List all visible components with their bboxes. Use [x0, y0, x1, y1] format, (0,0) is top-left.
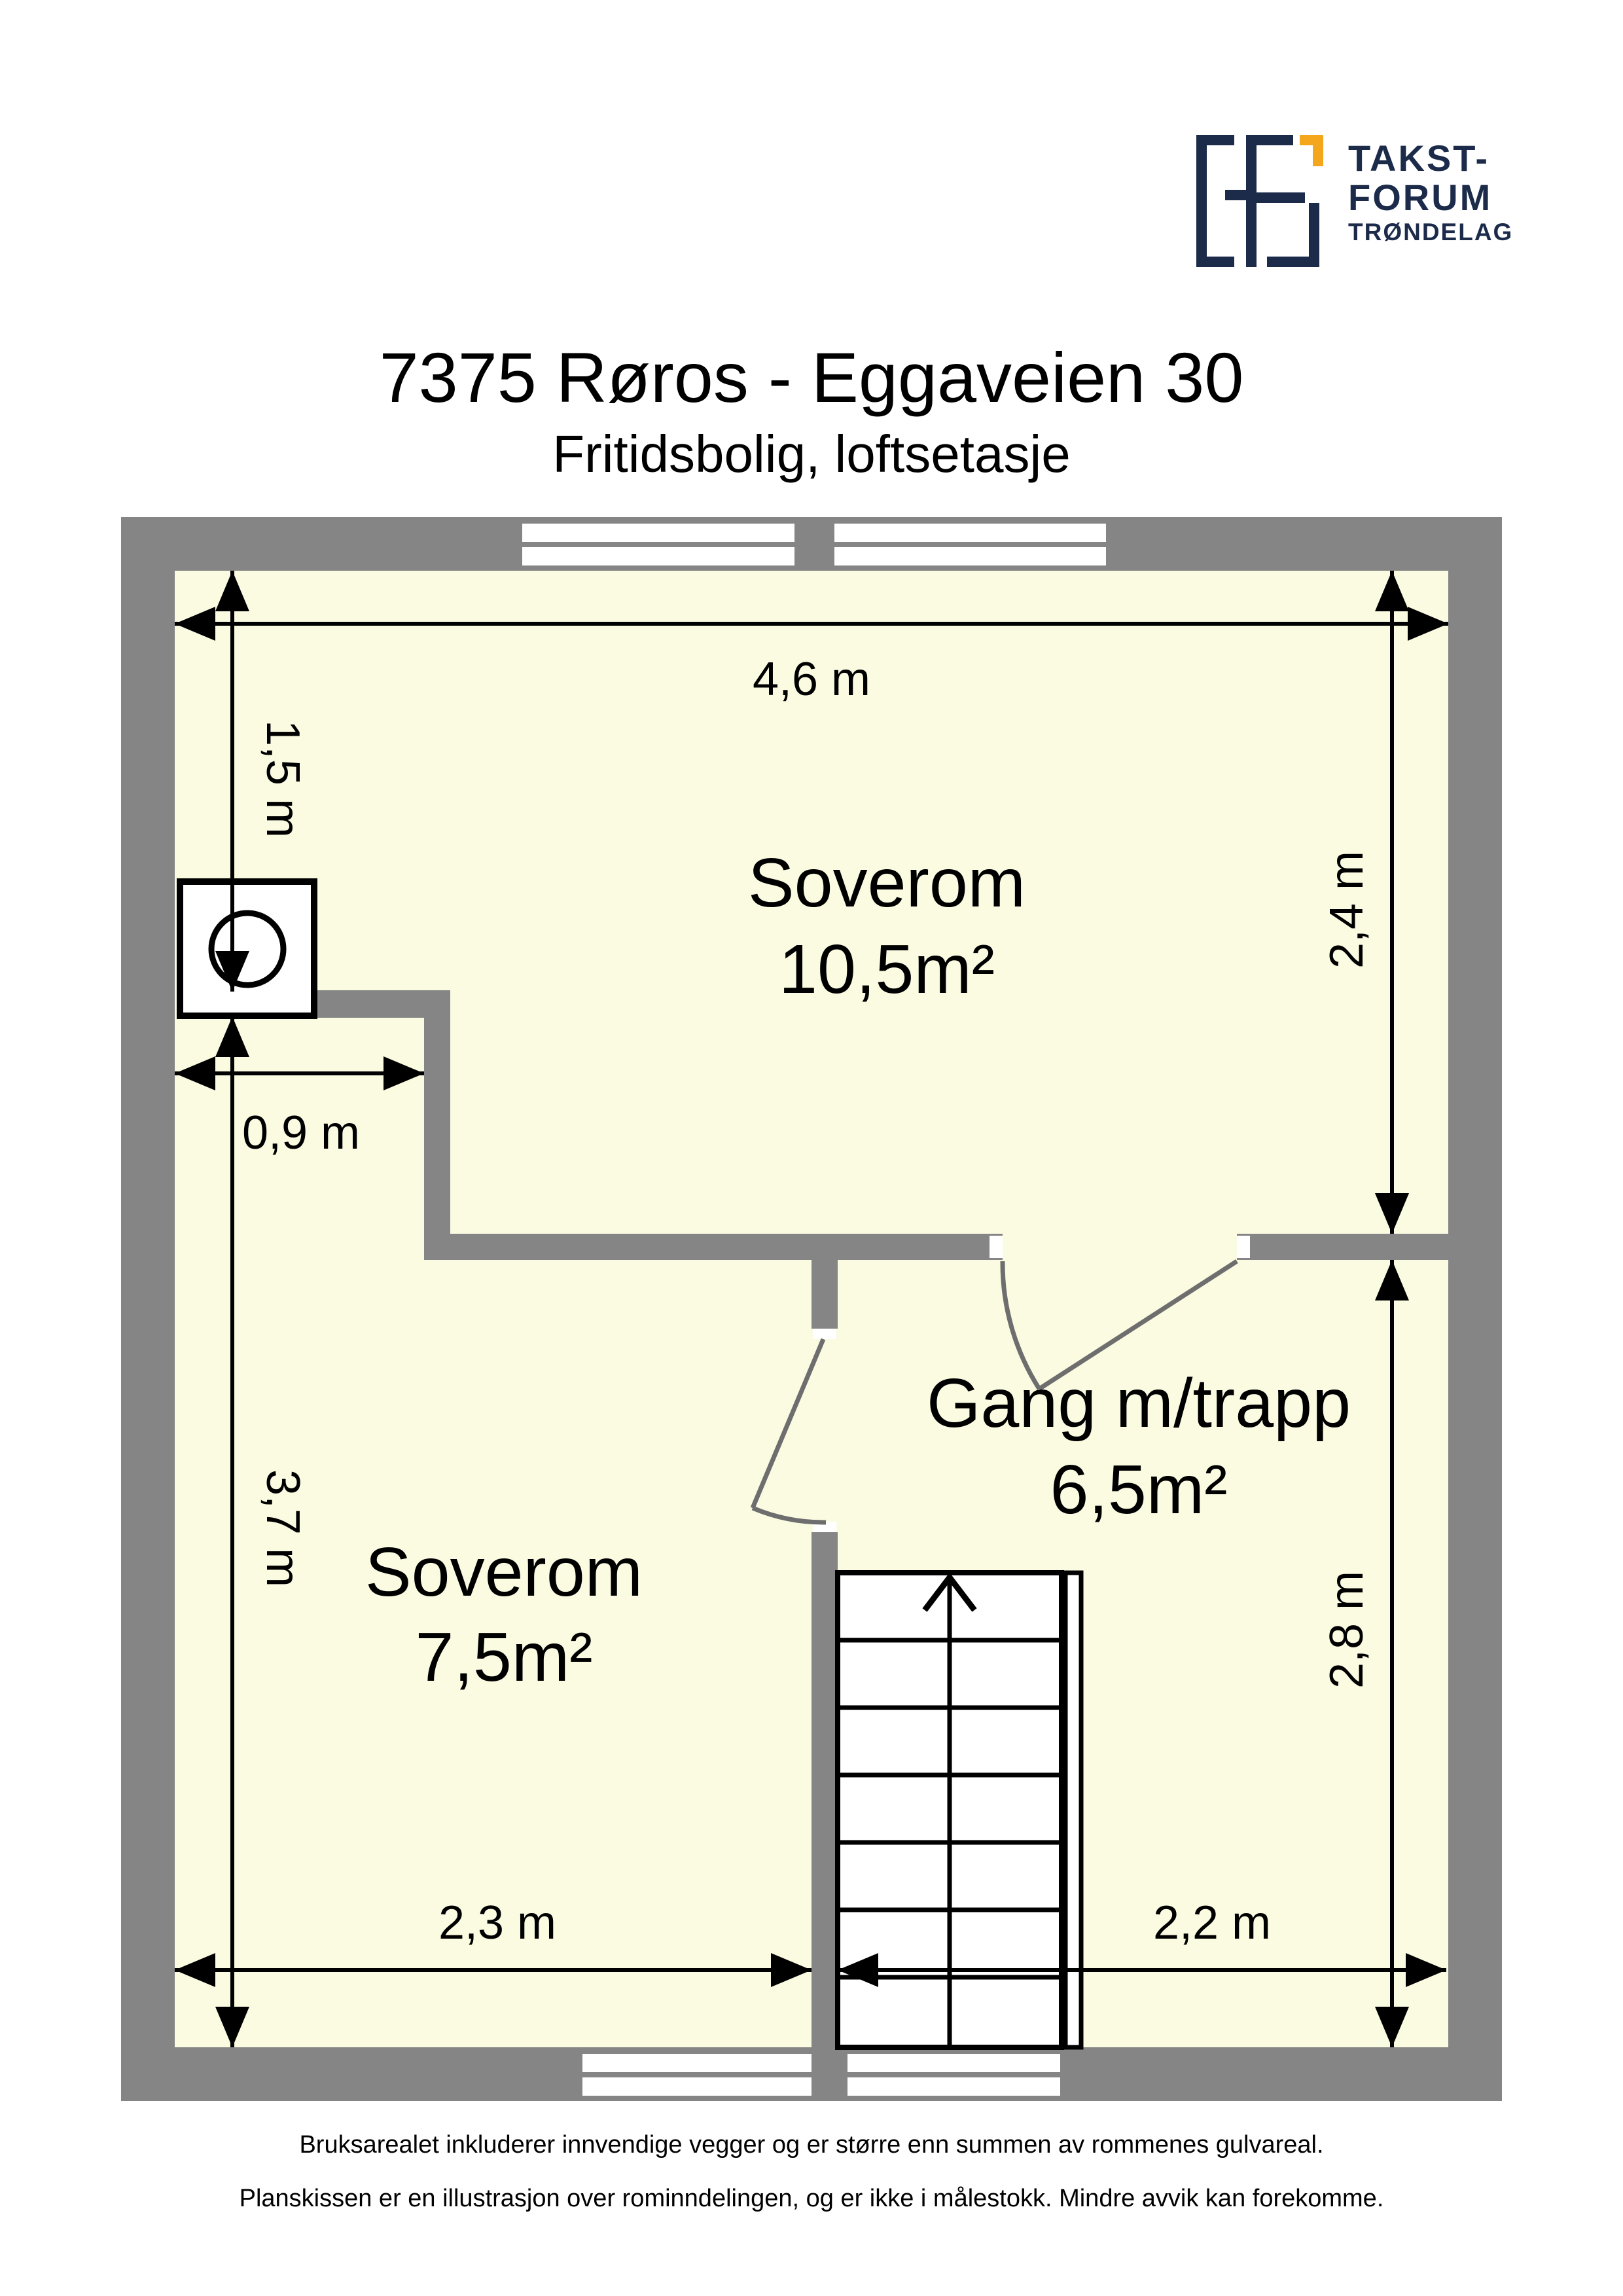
dim-label-right-upper: 2,4 m [1321, 851, 1373, 969]
dim-label-left-lower: 3,7 m [257, 1469, 309, 1587]
chimney-symbol [180, 882, 314, 1016]
stair-rail [1065, 1573, 1081, 2047]
dim-label-bottom-right: 2,2 m [1153, 1897, 1271, 1949]
room-label-soverom7-name: Soverom [365, 1534, 643, 1611]
room-label-gang-area: 6,5m² [1050, 1451, 1228, 1528]
dim-label-top: 4,6 m [753, 653, 870, 706]
wall-vertical-stub [424, 990, 450, 1260]
room-label-soverom10-area: 10,5m² [779, 931, 995, 1008]
wall-horizontal-right [1237, 1234, 1448, 1260]
disclaimer-line-1: Bruksarealet inkluderer innvendige vegge… [0, 2131, 1623, 2159]
dim-label-chimney-offset: 0,9 m [242, 1107, 360, 1159]
wall-horizontal-left [424, 1234, 1003, 1260]
disclaimer-line-2: Planskissen er en illustrasjon over romi… [0, 2185, 1623, 2213]
dim-label-right-lower: 2,8 m [1321, 1571, 1373, 1689]
floorplan: Soverom 10,5m² Gang m/trapp 6,5m² Sovero… [0, 0, 1623, 2296]
room-label-gang-name: Gang m/trapp [927, 1365, 1351, 1442]
wall-divider-upper [811, 1260, 838, 1329]
dim-label-bottom-left: 2,3 m [438, 1897, 556, 1949]
staircase [838, 1573, 1081, 2047]
dim-label-left-upper: 1,5 m [257, 720, 309, 838]
chimney-flue-icon [211, 913, 283, 985]
wall-divider-lower [811, 1532, 838, 2047]
room-label-soverom7-area: 7,5m² [416, 1619, 593, 1696]
room-label-soverom10-name: Soverom [748, 844, 1026, 922]
